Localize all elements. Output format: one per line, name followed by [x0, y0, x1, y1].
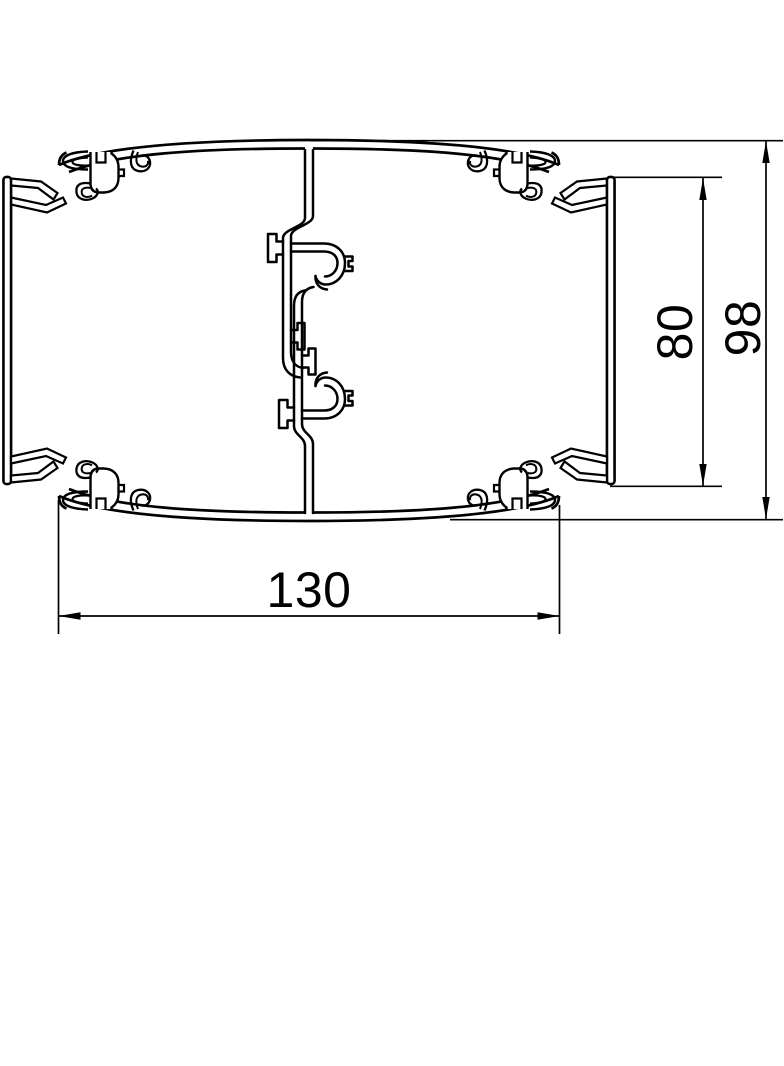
divider-lower-t-clip: [279, 400, 294, 428]
divider-lower-small-clip: [302, 349, 316, 375]
arrow-98-top: [762, 141, 769, 163]
divider-lower-right-line: [302, 287, 314, 513]
profile-body: [4, 140, 615, 521]
arrow-width-left: [59, 612, 81, 619]
divider-upper-t-clip: [268, 234, 283, 262]
quarter-bottom-right: [309, 177, 615, 521]
dimension-width-value: 130: [267, 562, 352, 618]
arrow-98-bottom: [762, 497, 769, 519]
dimension-overall-height-value: 98: [715, 300, 771, 357]
arrow-80-top: [699, 178, 706, 200]
quarter-bottom-left: [4, 177, 310, 521]
quarter-top-right: [309, 140, 615, 484]
arrow-80-bottom: [699, 464, 706, 486]
center-divider: [268, 150, 353, 513]
quarter-top-left: [4, 140, 310, 484]
profile-cross-section-drawing: 130 80 98: [0, 0, 784, 1066]
dimensioning: 130 80 98: [59, 141, 784, 634]
divider-lower-c-hook-inner: [302, 386, 338, 411]
dimension-inner-height-value: 80: [647, 304, 703, 361]
arrow-width-right: [538, 612, 560, 619]
divider-upper-c-hook-inner: [291, 252, 338, 277]
drawing-page: 130 80 98: [0, 0, 784, 1066]
